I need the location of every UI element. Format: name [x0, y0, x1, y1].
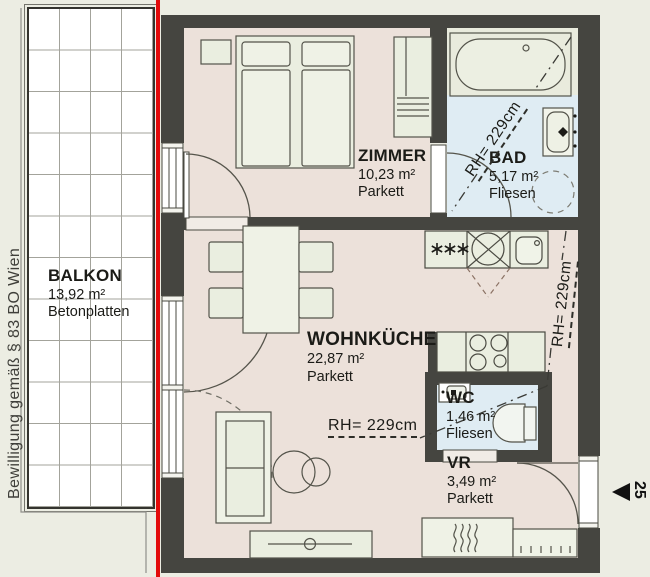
- vr-label: VR 3,49 m² Parkett: [447, 453, 496, 509]
- wohnkueche-area: 22,87 m²: [307, 351, 437, 369]
- vr-floor: Parkett: [447, 491, 496, 509]
- bad-area: 5,17 m²: [489, 169, 538, 187]
- balkon-label: BALKON 13,92 m² Betonplatten: [48, 266, 129, 322]
- bathtub: [450, 33, 571, 96]
- stove-counter: [437, 332, 545, 372]
- shoe-cabinet: [513, 529, 577, 557]
- balcony-door: [162, 296, 183, 478]
- zimmer-name: ZIMMER: [358, 146, 426, 167]
- floor-plan: Bewilligung gemäß § 83 BO Wien BALKON 13…: [0, 0, 650, 577]
- wc-name: WC: [446, 388, 495, 409]
- approval-side-note: Bewilligung gemäß § 83 BO Wien: [6, 248, 24, 499]
- balkon-floor: Betonplatten: [48, 304, 129, 322]
- fridge-freezer-stars: [432, 243, 468, 255]
- wohnkueche-name: WOHNKÜCHE: [307, 328, 437, 351]
- double-bed: [236, 36, 354, 168]
- wc-area: 1,46 m²: [446, 409, 495, 427]
- zimmer-floor: Parkett: [358, 184, 426, 202]
- wc-floor: Fliesen: [446, 426, 495, 444]
- dining-table: [243, 226, 299, 333]
- nightstand: [201, 40, 231, 64]
- red-boundary-line: [156, 0, 160, 577]
- entrance-arrow-icon: [612, 483, 630, 501]
- wohnkueche-label: WOHNKÜCHE 22,87 m² Parkett: [307, 328, 437, 387]
- sideboard: [250, 531, 372, 558]
- kitchen-sink: [516, 237, 542, 264]
- zimmer-label: ZIMMER 10,23 m² Parkett: [358, 146, 426, 202]
- wardrobe: [394, 37, 432, 137]
- wohnkueche-floor: Parkett: [307, 369, 437, 387]
- vr-name: VR: [447, 453, 496, 474]
- entrance-number: 25: [630, 481, 648, 499]
- vr-area: 3,49 m²: [447, 474, 496, 492]
- vr-wardrobe: [422, 518, 513, 557]
- toilet: [493, 404, 536, 442]
- wc-label: WC 1,46 m² Fliesen: [446, 388, 495, 444]
- washbasin: [543, 108, 577, 156]
- balkon-name: BALKON: [48, 266, 129, 287]
- bad-floor: Fliesen: [489, 186, 538, 204]
- living-ceiling-height: RH= 229cm: [328, 417, 417, 438]
- zimmer-window: [162, 143, 183, 213]
- zimmer-area: 10,23 m²: [358, 167, 426, 185]
- sofa: [216, 412, 271, 523]
- balkon-area: 13,92 m²: [48, 287, 129, 305]
